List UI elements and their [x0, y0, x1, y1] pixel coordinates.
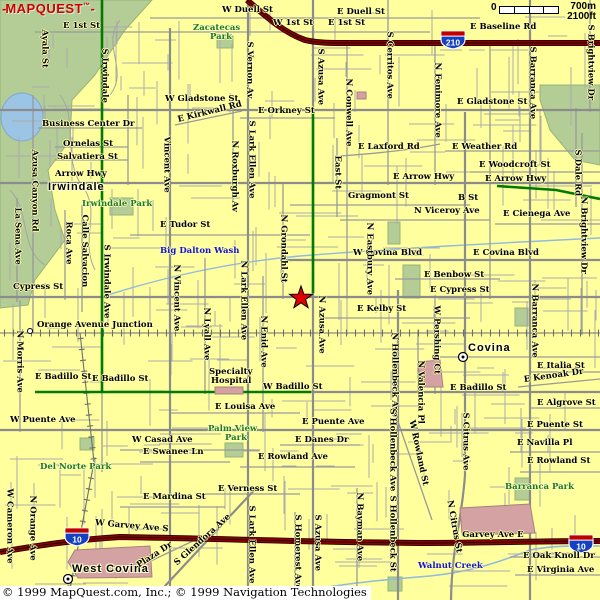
scale-bar-graphic: [499, 6, 559, 14]
map-canvas[interactable]: 2101010 W Duell StE Duell StW 1st StE 1s…: [0, 0, 600, 600]
scale-imperial-label: 2100ft: [567, 11, 596, 22]
lake: [1, 93, 43, 141]
scale-zero-label: 0: [491, 2, 497, 13]
logo-text: MAPQUEST: [5, 1, 83, 16]
trademark-symbol: ™: [83, 3, 91, 10]
copyright-notice: © 1999 MapQuest.com, Inc.; © 1999 Naviga…: [0, 586, 371, 600]
mapquest-logo[interactable]: -MAPQUEST™-: [2, 1, 94, 16]
scale-bar: 0 700m 2100ft: [491, 1, 596, 23]
specialty-hospital-building: [215, 387, 243, 394]
west-covina-mall: [68, 546, 152, 578]
logo-decoration-right: -: [91, 1, 94, 16]
map-graphics: [0, 0, 600, 600]
